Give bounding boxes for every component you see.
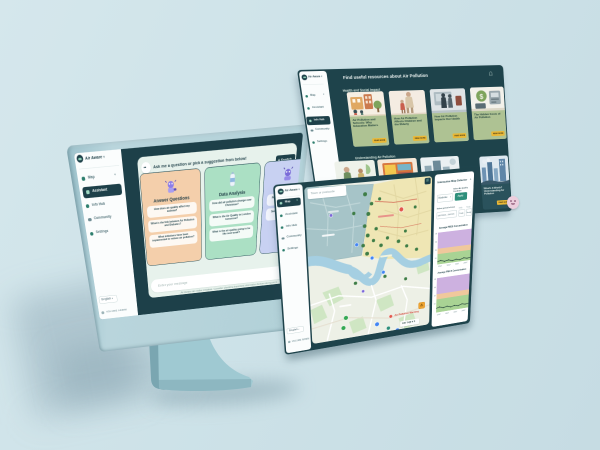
svg-text:20: 20 (435, 250, 437, 252)
svg-text:10: 10 (435, 258, 437, 260)
svg-text:40: 40 (435, 233, 437, 235)
svg-text:20: 20 (434, 295, 436, 297)
svg-text:30: 30 (435, 242, 437, 244)
svg-text:10: 10 (434, 304, 436, 306)
svg-text:40: 40 (434, 279, 436, 281)
svg-text:30: 30 (434, 287, 436, 289)
